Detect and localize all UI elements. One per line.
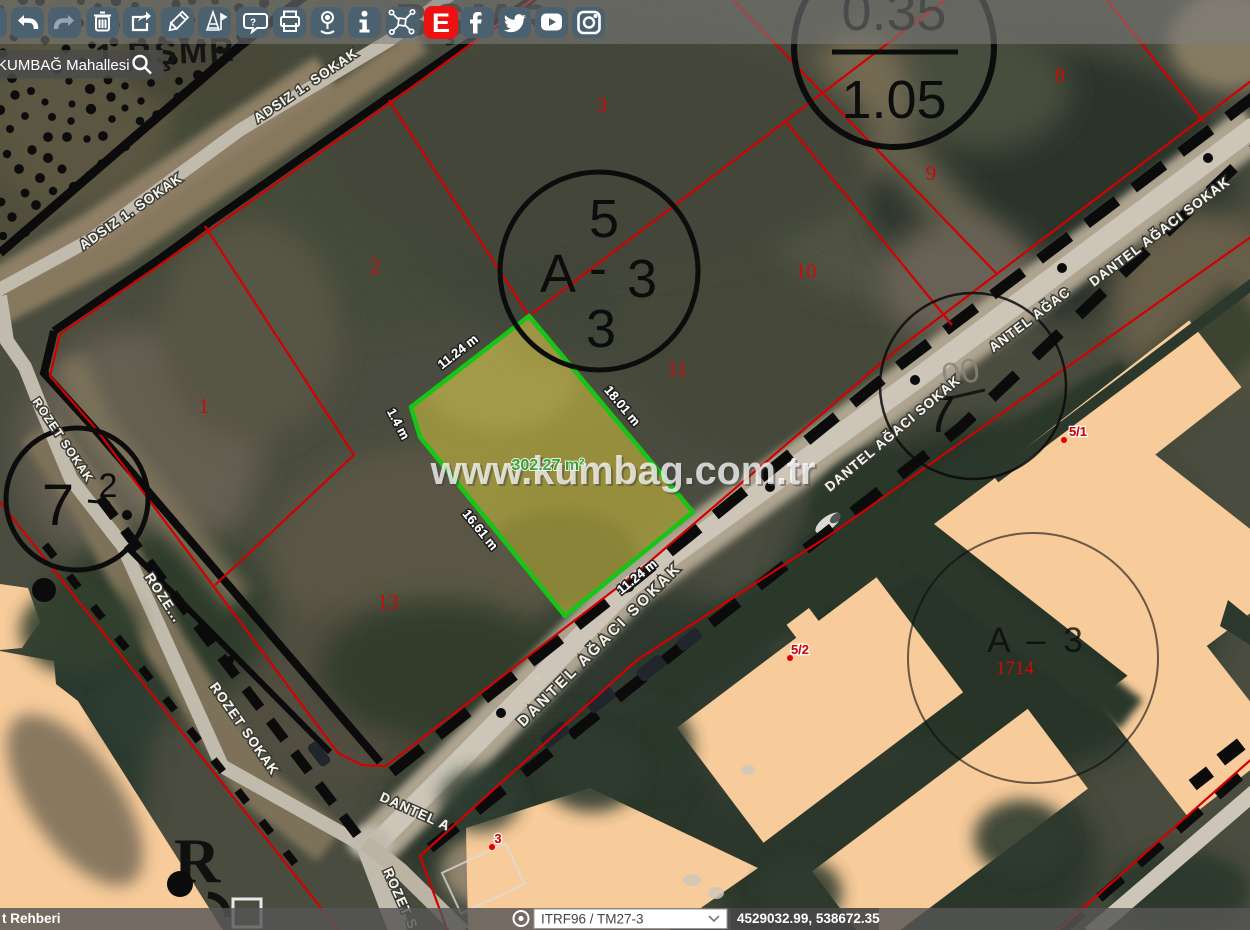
svg-text:4529032.99, 538672.35: 4529032.99, 538672.35	[737, 911, 880, 926]
svg-text:9: 9	[926, 161, 937, 185]
svg-text:?: ?	[250, 18, 256, 29]
svg-text:302.27 m²: 302.27 m²	[512, 457, 585, 474]
svg-text:1.05: 1.05	[841, 70, 946, 130]
svg-text:ITRF96 / TM27-3: ITRF96 / TM27-3	[541, 912, 644, 927]
svg-text:www.kumbag.com.tr: www.kumbag.com.tr	[430, 449, 816, 493]
svg-text:1: 1	[199, 394, 210, 418]
svg-text:1714: 1714	[996, 658, 1035, 679]
svg-text:13: 13	[378, 590, 399, 614]
svg-text:5/1: 5/1	[1069, 424, 1087, 439]
svg-text:2: 2	[99, 467, 118, 505]
svg-text:KUMBAĞ Mahallesi: KUMBAĞ Mahallesi	[0, 57, 130, 74]
svg-text:A – 3: A – 3	[987, 621, 1087, 660]
svg-text:A: A	[540, 244, 576, 304]
svg-text:5/2: 5/2	[791, 642, 809, 657]
svg-text:E: E	[432, 8, 450, 38]
svg-text:3: 3	[597, 93, 608, 117]
svg-text:t Rehberi: t Rehberi	[2, 911, 61, 926]
svg-text:10: 10	[796, 259, 817, 283]
svg-text:7: 7	[42, 473, 74, 538]
svg-text:11: 11	[667, 357, 687, 381]
svg-text:-: -	[589, 238, 607, 298]
svg-text:2: 2	[370, 254, 381, 278]
svg-text:3: 3	[494, 831, 501, 846]
svg-text:8: 8	[1055, 63, 1066, 87]
svg-text:3: 3	[586, 299, 616, 359]
svg-text:3: 3	[627, 249, 657, 309]
